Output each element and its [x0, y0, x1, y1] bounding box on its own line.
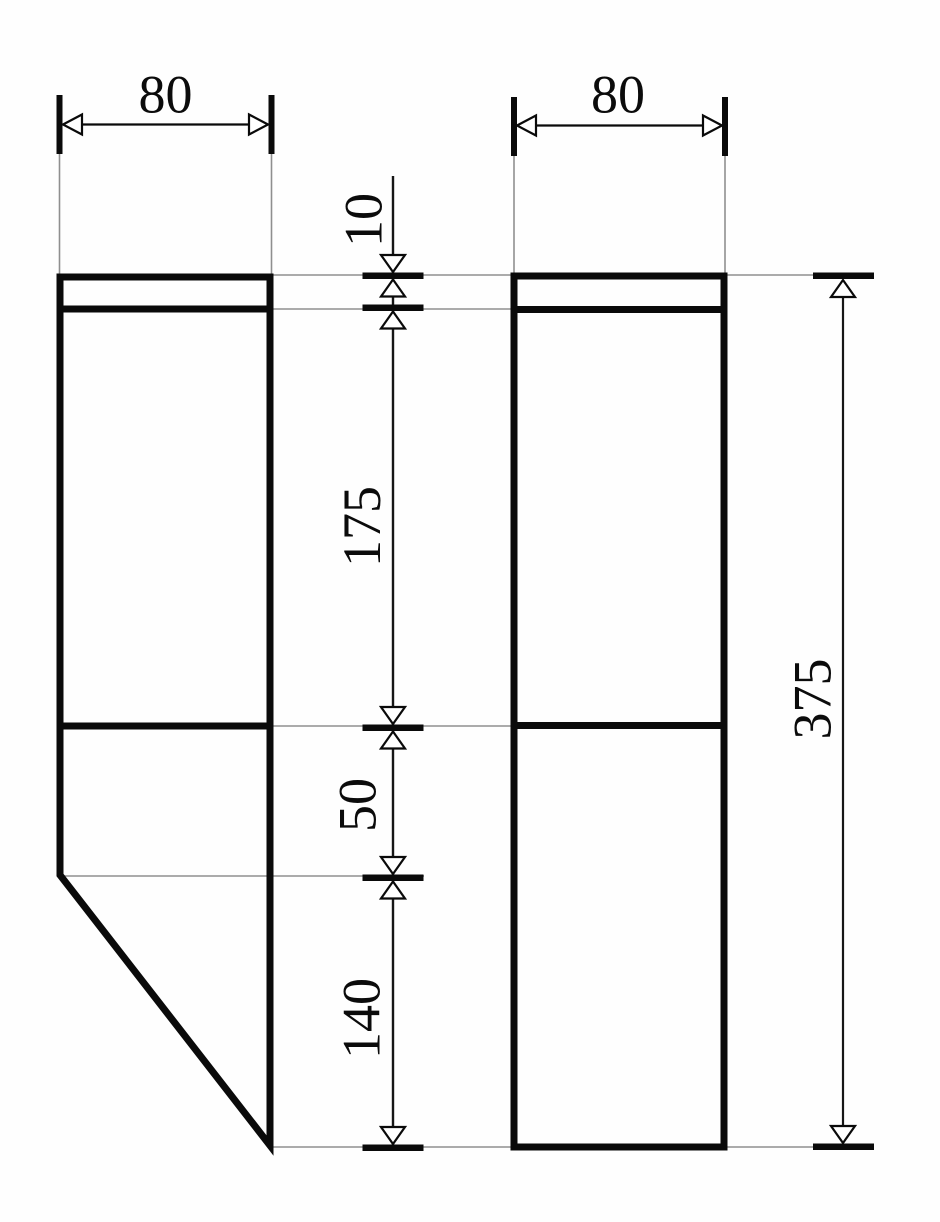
svg-text:50: 50 — [328, 778, 388, 832]
svg-text:140: 140 — [332, 978, 392, 1059]
svg-text:10: 10 — [334, 193, 394, 247]
svg-text:375: 375 — [783, 659, 843, 740]
svg-text:80: 80 — [591, 65, 645, 125]
svg-text:80: 80 — [139, 65, 193, 125]
svg-text:175: 175 — [332, 486, 392, 567]
